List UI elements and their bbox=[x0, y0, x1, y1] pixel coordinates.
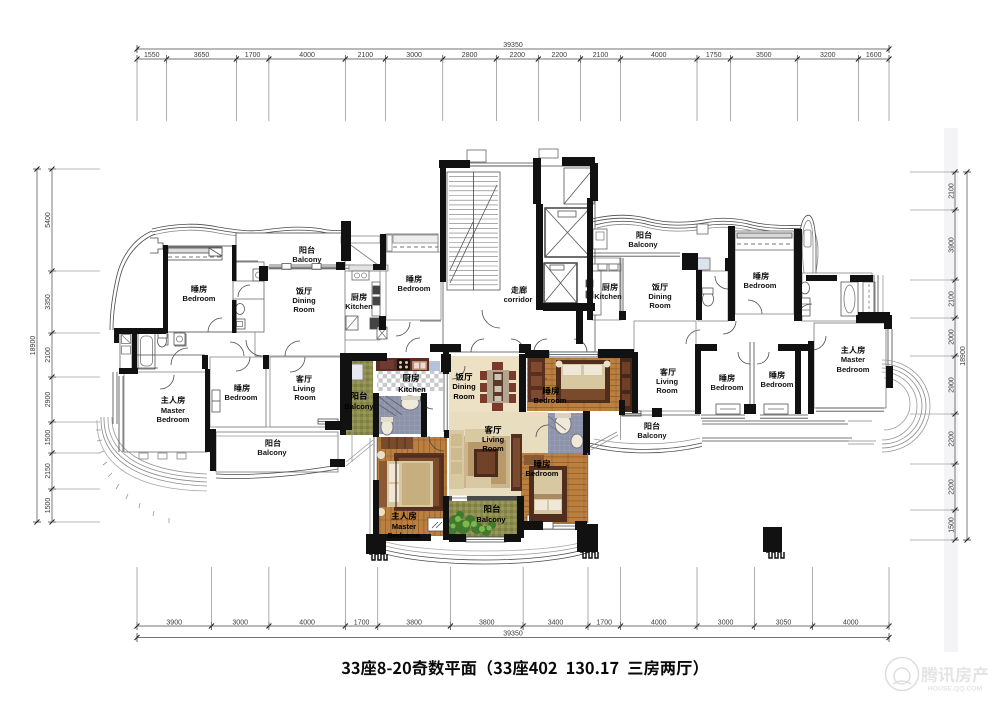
svg-text:Kitchen: Kitchen bbox=[345, 302, 373, 311]
svg-text:4000: 4000 bbox=[299, 52, 315, 59]
svg-text:1700: 1700 bbox=[245, 52, 261, 59]
svg-text:3500: 3500 bbox=[756, 52, 772, 59]
svg-text:4000: 4000 bbox=[843, 620, 859, 627]
svg-text:1700: 1700 bbox=[596, 620, 612, 627]
svg-text:3900: 3900 bbox=[166, 620, 182, 627]
svg-text:2200: 2200 bbox=[552, 52, 568, 59]
svg-text:Living: Living bbox=[293, 384, 316, 393]
svg-text:1500: 1500 bbox=[45, 498, 52, 514]
svg-text:3050: 3050 bbox=[776, 620, 792, 627]
svg-text:2800: 2800 bbox=[462, 52, 478, 59]
svg-text:Bedroom: Bedroom bbox=[398, 284, 431, 293]
svg-text:Master: Master bbox=[392, 522, 416, 531]
svg-text:2900: 2900 bbox=[949, 377, 956, 393]
svg-text:Bedroom: Bedroom bbox=[711, 383, 744, 392]
svg-text:Dining: Dining bbox=[648, 292, 672, 301]
svg-text:Balcony: Balcony bbox=[292, 255, 322, 264]
svg-text:Bedroom: Bedroom bbox=[534, 396, 567, 405]
svg-text:Balcony: Balcony bbox=[344, 402, 374, 411]
svg-text:Master: Master bbox=[161, 406, 185, 415]
svg-text:Balcony: Balcony bbox=[476, 515, 506, 524]
svg-text:Room: Room bbox=[656, 386, 678, 395]
svg-text:Master: Master bbox=[841, 355, 865, 364]
svg-text:5400: 5400 bbox=[45, 212, 52, 228]
svg-text:HOUSE.QQ.COM: HOUSE.QQ.COM bbox=[928, 686, 983, 693]
svg-text:Bedroom: Bedroom bbox=[526, 469, 559, 478]
svg-text:Balcony: Balcony bbox=[257, 448, 287, 457]
svg-text:Kitchen: Kitchen bbox=[594, 292, 622, 301]
svg-text:Room: Room bbox=[293, 305, 315, 314]
svg-text:1750: 1750 bbox=[706, 52, 722, 59]
svg-text:Room: Room bbox=[294, 393, 316, 402]
svg-text:2100: 2100 bbox=[45, 347, 52, 363]
svg-text:corridor: corridor bbox=[504, 295, 533, 304]
svg-text:3800: 3800 bbox=[406, 620, 422, 627]
svg-text:39350: 39350 bbox=[503, 631, 523, 638]
svg-text:Room: Room bbox=[649, 301, 671, 310]
svg-text:2200: 2200 bbox=[949, 431, 956, 447]
svg-text:2200: 2200 bbox=[949, 479, 956, 495]
svg-text:Dining: Dining bbox=[292, 296, 316, 305]
svg-text:3800: 3800 bbox=[479, 620, 495, 627]
svg-text:Bedroom: Bedroom bbox=[157, 415, 190, 424]
svg-text:3350: 3350 bbox=[45, 294, 52, 310]
svg-text:4000: 4000 bbox=[651, 620, 667, 627]
svg-text:1700: 1700 bbox=[354, 620, 370, 627]
svg-text:Bedroom: Bedroom bbox=[837, 365, 870, 374]
svg-text:Bedroom: Bedroom bbox=[183, 294, 216, 303]
svg-text:Living: Living bbox=[482, 435, 505, 444]
svg-text:Balcony: Balcony bbox=[637, 431, 667, 440]
svg-text:2000: 2000 bbox=[949, 329, 956, 345]
svg-text:Dining: Dining bbox=[452, 382, 476, 391]
svg-text:1500: 1500 bbox=[45, 430, 52, 446]
svg-text:39350: 39350 bbox=[503, 42, 523, 49]
svg-text:4000: 4000 bbox=[299, 620, 315, 627]
svg-text:1500: 1500 bbox=[949, 517, 956, 533]
svg-text:1550: 1550 bbox=[144, 52, 160, 59]
svg-text:Kitchen: Kitchen bbox=[398, 385, 426, 394]
svg-text:2900: 2900 bbox=[45, 392, 52, 408]
svg-text:Bedroom: Bedroom bbox=[225, 393, 258, 402]
svg-text:3000: 3000 bbox=[232, 620, 248, 627]
svg-text:2100: 2100 bbox=[949, 291, 956, 307]
svg-text:2200: 2200 bbox=[510, 52, 526, 59]
svg-text:Room: Room bbox=[482, 444, 504, 453]
svg-text:Bedroom: Bedroom bbox=[761, 380, 794, 389]
svg-text:18900: 18900 bbox=[960, 346, 967, 366]
svg-text:2100: 2100 bbox=[949, 183, 956, 199]
svg-text:Room: Room bbox=[453, 392, 475, 401]
svg-text:3000: 3000 bbox=[718, 620, 734, 627]
svg-text:2100: 2100 bbox=[593, 52, 609, 59]
svg-text:3000: 3000 bbox=[406, 52, 422, 59]
svg-text:3200: 3200 bbox=[820, 52, 836, 59]
svg-text:Balcony: Balcony bbox=[628, 240, 658, 249]
svg-text:3900: 3900 bbox=[949, 237, 956, 253]
svg-text:3400: 3400 bbox=[548, 620, 564, 627]
svg-text:2150: 2150 bbox=[45, 463, 52, 479]
svg-text:1600: 1600 bbox=[866, 52, 882, 59]
svg-text:Bedroom: Bedroom bbox=[388, 531, 421, 540]
svg-text:18900: 18900 bbox=[30, 336, 37, 356]
svg-text:3650: 3650 bbox=[194, 52, 210, 59]
svg-text:Living: Living bbox=[656, 377, 679, 386]
svg-text:4000: 4000 bbox=[651, 52, 667, 59]
svg-text:Bedroom: Bedroom bbox=[744, 281, 777, 290]
svg-text:2100: 2100 bbox=[358, 52, 374, 59]
